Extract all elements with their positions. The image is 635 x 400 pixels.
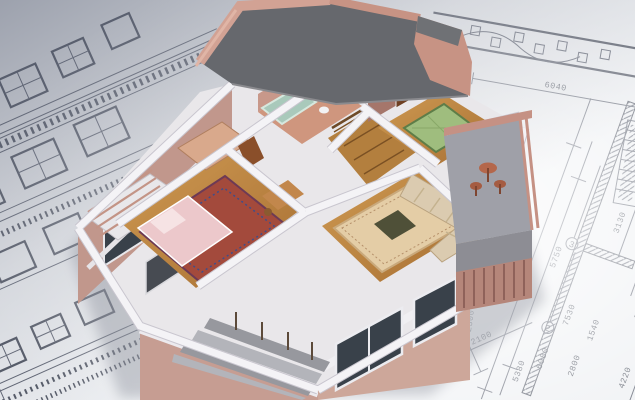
architectural-render: 16200 12400 2300 1650 2100 A 6080 5380 2… [0,0,635,400]
toilet [319,107,329,114]
render-canvas: 16200 12400 2300 1650 2100 A 6080 5380 2… [0,0,635,400]
chair [264,208,272,216]
